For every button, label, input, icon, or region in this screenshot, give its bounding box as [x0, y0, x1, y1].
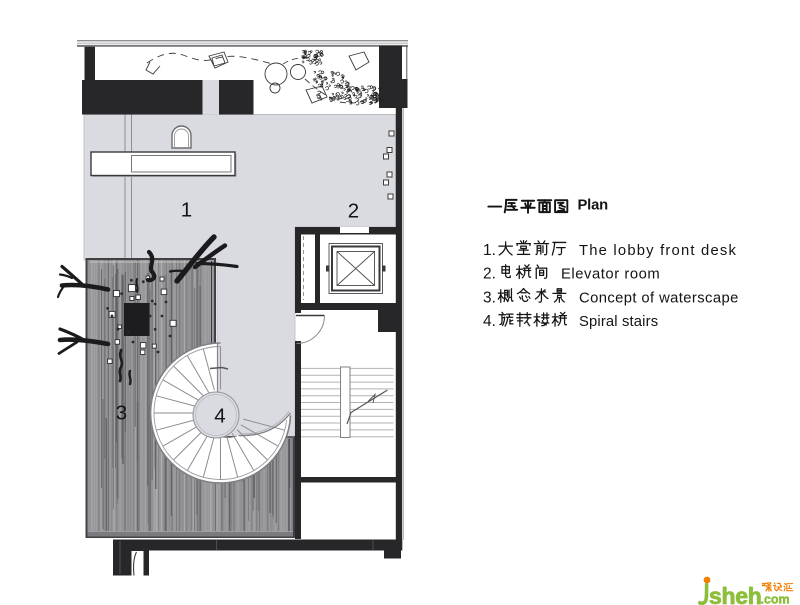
- svg-text:Concept of waterscape: Concept of waterscape: [579, 290, 739, 306]
- svg-text:1.: 1.: [483, 242, 496, 259]
- svg-text:The lobby front desk: The lobby front desk: [579, 243, 737, 259]
- svg-text:4.: 4.: [483, 313, 496, 330]
- svg-text:Plan: Plan: [578, 198, 609, 214]
- svg-text:2: 2: [348, 200, 359, 223]
- svg-text:Spiral stairs: Spiral stairs: [579, 314, 658, 330]
- svg-text:3.: 3.: [483, 289, 496, 306]
- svg-text:3: 3: [116, 402, 127, 425]
- svg-text:.com: .com: [761, 593, 790, 605]
- svg-text:Elevator room: Elevator room: [561, 267, 660, 283]
- svg-text:4: 4: [214, 405, 225, 428]
- svg-text:sheh: sheh: [709, 583, 761, 605]
- svg-text:2.: 2.: [483, 266, 496, 283]
- svg-text:1: 1: [181, 199, 192, 222]
